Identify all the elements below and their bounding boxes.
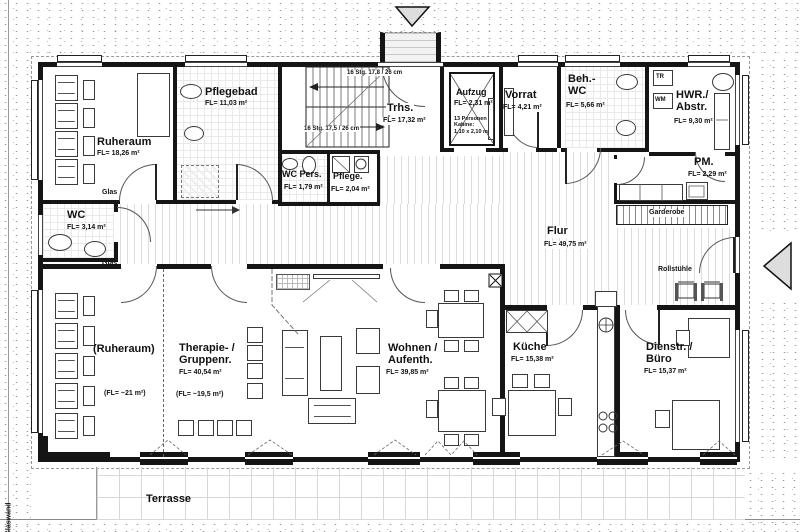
kitchen-chair xyxy=(492,398,506,416)
recliner-chair xyxy=(55,131,78,157)
room-label-wc: WC xyxy=(67,210,85,222)
terrace-door-threshold xyxy=(140,452,188,465)
terrace-door-threshold xyxy=(368,452,420,465)
wall-segment xyxy=(557,67,561,148)
window-sill xyxy=(742,330,749,442)
room-area-pflege: FL= 2,04 m² xyxy=(331,186,370,194)
footstool xyxy=(83,416,95,436)
kitchen-tall-unit xyxy=(595,291,617,307)
office-chair xyxy=(655,410,670,428)
wall-segment xyxy=(500,264,505,457)
room-notes-aufzug: 13 Personen Kabine: 1,10 x 2,10 m xyxy=(454,116,488,135)
counter xyxy=(714,93,730,150)
room-area-pm: FL= 2,29 m² xyxy=(688,171,727,179)
room-label-dienstr: Dienstr. / Büro xyxy=(646,342,692,366)
annotation-garderobe: Garderobe xyxy=(648,209,685,217)
landscape-texture xyxy=(0,521,800,532)
annotation-rollstuehle: Rollstühle xyxy=(658,266,692,274)
window-sill xyxy=(742,75,749,145)
annotation-glas-lower: Glas xyxy=(102,260,117,268)
dining-chair xyxy=(444,434,459,446)
window xyxy=(735,237,740,273)
appliance-label-wm: WM xyxy=(655,97,666,103)
toilet xyxy=(84,241,106,257)
stool xyxy=(236,420,252,436)
floor-plan: Ruheraum FL= 18,26 m² Pflegebad FL= 11,0… xyxy=(0,0,800,532)
dining-chair xyxy=(426,310,438,328)
room-area-ruheraum-og: FL= 18,26 m² xyxy=(97,150,140,158)
chair xyxy=(247,383,263,399)
dining-chair xyxy=(444,377,459,389)
washbasin xyxy=(48,234,72,251)
room-area-aufzug: FL= 2,31 m² xyxy=(454,100,493,108)
room-label-vorrat: Vorrat xyxy=(505,90,537,102)
appliance-label-tr: TR xyxy=(656,74,664,80)
window xyxy=(38,80,43,180)
wall-segment xyxy=(38,452,110,462)
door-leaf xyxy=(537,112,539,148)
room-label-pm: PM. xyxy=(694,157,714,169)
wall-segment xyxy=(645,67,649,152)
stool xyxy=(198,420,214,436)
room-area-pflegebad: FL= 11,03 m² xyxy=(205,100,247,108)
chair xyxy=(247,345,263,361)
corridor-floor-hatch xyxy=(380,156,500,204)
wall-segment xyxy=(440,67,444,152)
dining-chair xyxy=(464,434,479,446)
wall-segment xyxy=(649,152,695,156)
dining-chair xyxy=(444,340,459,352)
window xyxy=(38,215,43,255)
room-area-wc: FL= 3,14 m² xyxy=(67,224,106,232)
coffee-table xyxy=(320,336,342,391)
wall-segment xyxy=(486,148,503,152)
window-sill xyxy=(31,290,38,433)
dining-table xyxy=(438,303,484,338)
entrance-arrow-right-icon xyxy=(764,243,791,289)
wall-segment xyxy=(157,264,211,269)
window xyxy=(565,62,620,67)
chair xyxy=(247,327,263,343)
window xyxy=(688,62,730,67)
room-label-kueche: Küche xyxy=(513,342,547,354)
room-area-wohnen: FL= 39,85 m² xyxy=(386,369,429,377)
wall-segment xyxy=(247,264,383,269)
kitchen-counter xyxy=(597,305,615,457)
tv-board xyxy=(313,274,380,279)
wall-segment xyxy=(377,150,380,206)
wall-segment xyxy=(440,148,454,152)
wall-segment xyxy=(327,154,330,202)
wall-segment xyxy=(38,200,120,204)
wall-segment xyxy=(440,264,505,269)
landscape-texture xyxy=(745,470,800,526)
door-leaf xyxy=(155,164,157,200)
site-boundary-left xyxy=(8,0,9,532)
room-area-trhs: FL= 17,32 m² xyxy=(382,117,427,125)
footstool xyxy=(83,386,95,406)
room-label-trhs: Trhs. xyxy=(386,103,414,115)
room-area-therapie: FL= 40,54 m² xyxy=(179,369,222,377)
recliner-chair xyxy=(55,323,78,349)
sofa xyxy=(282,330,308,396)
kitchen-chair xyxy=(558,398,572,416)
stool xyxy=(217,420,233,436)
footstool xyxy=(83,356,95,376)
annotation-stair-upper: 16 Stg. 17,8 / 26 cm xyxy=(346,70,403,76)
kitchen-chair xyxy=(534,374,550,388)
window-sill xyxy=(518,55,558,62)
toilet xyxy=(616,74,638,90)
terrace-door-threshold xyxy=(473,452,520,465)
stool xyxy=(178,420,194,436)
washbasin xyxy=(180,84,202,99)
wall-segment xyxy=(615,305,620,457)
room-label-wohnen: Wohnen / Aufenth. xyxy=(388,343,437,367)
room-area-kueche: FL= 15,38 m² xyxy=(511,356,554,364)
footstool xyxy=(83,164,95,184)
wall-segment xyxy=(657,305,735,310)
door-leaf xyxy=(236,164,238,200)
annotation-stair-lower: 16 Stg. 17,5 / 26 cm xyxy=(303,126,360,132)
room-label-beh-wc: Beh.- WC xyxy=(568,74,596,98)
room-divider-dashed xyxy=(163,269,164,457)
window xyxy=(185,62,247,67)
room-area-wc-pers: FL= 1,79 m² xyxy=(284,184,323,192)
kitchen-table xyxy=(508,390,556,436)
room-area-ruheraum-eg: (FL= ~21 m²) xyxy=(104,390,146,398)
terrace-door-threshold xyxy=(700,452,737,465)
footstool xyxy=(83,80,95,100)
wall-segment xyxy=(278,202,380,206)
footstool xyxy=(83,108,95,128)
window-sill xyxy=(565,55,620,62)
wall-segment xyxy=(536,148,557,152)
recliner-chair xyxy=(55,75,78,101)
recliner-chair xyxy=(55,159,78,185)
window xyxy=(518,62,558,67)
dining-chair xyxy=(464,290,479,302)
room-label-hwr: HWR./ Abstr. xyxy=(676,90,708,114)
terrace-paving xyxy=(96,467,745,520)
footstool xyxy=(83,296,95,316)
window-sill xyxy=(31,80,38,180)
door-leaf xyxy=(658,310,660,345)
entrance-steps-top xyxy=(380,32,441,62)
landscape-texture xyxy=(757,57,800,235)
desk xyxy=(688,318,730,358)
recliner-chair xyxy=(55,293,78,319)
recliner-chair xyxy=(55,103,78,129)
wall-segment xyxy=(173,67,177,200)
radiator xyxy=(276,274,310,290)
kitchen-chair xyxy=(512,374,528,388)
dining-chair xyxy=(464,340,479,352)
wall-segment xyxy=(597,148,645,152)
kitchen-cabinet xyxy=(506,310,548,333)
room-label-terrasse: Terrasse xyxy=(146,494,191,506)
window-sill xyxy=(185,55,247,62)
dining-chair xyxy=(426,400,438,418)
room-label-therapie: Therapie- / Gruppenr. xyxy=(179,343,235,367)
corridor-floor-hatch xyxy=(120,204,500,264)
desk xyxy=(672,400,720,450)
room-area-dienstr: FL= 15,37 m² xyxy=(644,368,687,376)
room-area-beh-wc: FL= 5,66 m² xyxy=(566,102,605,110)
landscape-texture xyxy=(757,300,800,460)
dining-chair xyxy=(464,377,479,389)
chair xyxy=(247,363,263,379)
room-label-pflege: Pflege. xyxy=(333,172,363,182)
footstool xyxy=(83,136,95,156)
terrace-door-threshold xyxy=(245,452,293,465)
recliner-chair xyxy=(55,383,78,409)
annotation-glas-upper: Glas xyxy=(102,189,117,197)
window-sill xyxy=(688,55,730,62)
dining-chair xyxy=(444,290,459,302)
room-label-flur: Flur xyxy=(546,226,569,238)
washbasin xyxy=(616,120,636,136)
bench xyxy=(619,184,683,201)
window xyxy=(735,330,740,442)
door-leaf xyxy=(733,237,735,273)
window xyxy=(38,290,43,433)
wall-segment xyxy=(725,152,735,156)
annotation-glaswand: Glaswand xyxy=(5,502,13,532)
sofa xyxy=(308,398,356,424)
dining-table xyxy=(438,390,486,432)
landscape-texture xyxy=(0,57,33,432)
locker xyxy=(686,182,708,200)
window xyxy=(735,75,740,145)
side-table xyxy=(137,73,170,137)
room-label-ruheraum-og: Ruheraum xyxy=(97,137,151,149)
toilet xyxy=(184,126,204,141)
room-area-flur: FL= 49,75 m² xyxy=(543,241,588,249)
room-label-wc-pers: WC Pers. xyxy=(282,170,322,180)
room-area-vorrat: FL= 4,21 m² xyxy=(503,104,542,112)
wall-segment xyxy=(503,148,508,152)
window-sill xyxy=(57,55,102,62)
armchair xyxy=(356,328,380,354)
room-note-therapie: (FL= ~19,5 m²) xyxy=(176,391,223,399)
recliner-chair xyxy=(55,413,78,439)
wall-segment xyxy=(156,200,236,204)
washbasin xyxy=(712,73,734,91)
room-label-ruheraum-eg: (Ruheraum) xyxy=(93,344,155,356)
recliner-chair xyxy=(55,353,78,379)
room-label-aufzug: Aufzug xyxy=(456,88,487,98)
armchair xyxy=(356,366,380,394)
door-leaf xyxy=(565,148,567,184)
room-label-pflegebad: Pflegebad xyxy=(205,87,258,99)
room-area-hwr: FL= 9,30 m² xyxy=(674,118,713,126)
shower-area xyxy=(181,165,219,198)
window xyxy=(57,62,102,67)
